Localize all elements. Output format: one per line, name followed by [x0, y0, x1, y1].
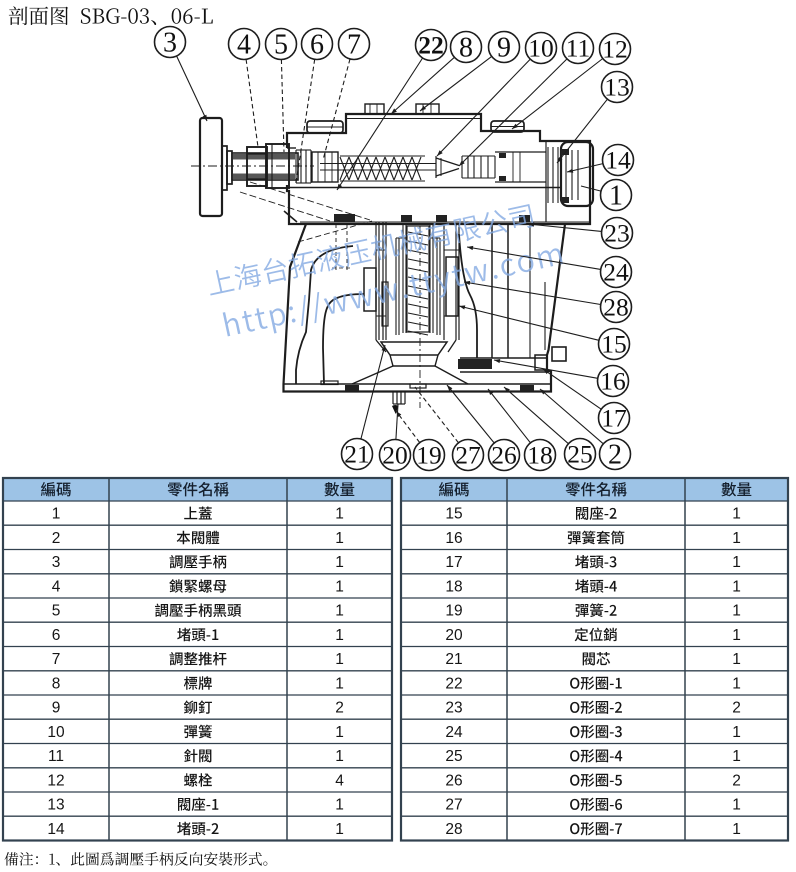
svg-text:26: 26 — [491, 441, 517, 470]
svg-text:1: 1 — [732, 530, 741, 547]
svg-text:1: 1 — [732, 676, 741, 693]
svg-text:23: 23 — [604, 219, 630, 248]
svg-text:1: 1 — [609, 180, 623, 211]
svg-text:23: 23 — [445, 700, 462, 717]
svg-text:10: 10 — [528, 34, 554, 63]
svg-text:2: 2 — [732, 773, 741, 790]
svg-text:20: 20 — [382, 441, 408, 470]
svg-text:17: 17 — [445, 554, 462, 571]
svg-text:25: 25 — [445, 748, 462, 765]
svg-text:21: 21 — [445, 651, 462, 668]
svg-text:24: 24 — [603, 258, 629, 287]
svg-text:5: 5 — [274, 29, 288, 60]
svg-text:8: 8 — [52, 676, 61, 693]
svg-text:11: 11 — [566, 34, 591, 63]
svg-text:1: 1 — [732, 554, 741, 571]
svg-text:1: 1 — [335, 797, 344, 814]
svg-text:19: 19 — [445, 603, 462, 620]
svg-text:16: 16 — [600, 367, 626, 396]
svg-text:19: 19 — [416, 441, 442, 470]
svg-text:4: 4 — [52, 579, 61, 596]
svg-text:22: 22 — [418, 31, 444, 60]
svg-text:1: 1 — [732, 748, 741, 765]
svg-text:4: 4 — [335, 773, 344, 790]
svg-text:1: 1 — [732, 506, 741, 523]
svg-text:1: 1 — [52, 506, 61, 523]
svg-text:24: 24 — [445, 724, 463, 741]
svg-text:13: 13 — [47, 797, 64, 814]
svg-text:1: 1 — [732, 579, 741, 596]
svg-text:28: 28 — [603, 293, 629, 322]
svg-text:18: 18 — [445, 579, 462, 596]
svg-text:12: 12 — [602, 35, 628, 64]
svg-text:15: 15 — [445, 506, 462, 523]
svg-text:1: 1 — [732, 821, 741, 838]
svg-text:21: 21 — [344, 440, 370, 469]
svg-text:1: 1 — [732, 651, 741, 668]
svg-text:4: 4 — [237, 29, 251, 60]
svg-text:10: 10 — [47, 724, 65, 741]
svg-text:12: 12 — [47, 773, 64, 790]
svg-text:1: 1 — [335, 554, 344, 571]
svg-text:22: 22 — [445, 676, 462, 693]
svg-text:28: 28 — [445, 821, 462, 838]
svg-text:1: 1 — [335, 579, 344, 596]
svg-text:6: 6 — [310, 29, 324, 60]
svg-text:1: 1 — [732, 724, 741, 741]
svg-text:27: 27 — [455, 441, 481, 470]
svg-text:2: 2 — [52, 530, 61, 547]
svg-text:1: 1 — [335, 651, 344, 668]
svg-text:7: 7 — [52, 651, 61, 668]
svg-text:7: 7 — [347, 29, 361, 60]
svg-text:16: 16 — [445, 530, 462, 547]
svg-text:1: 1 — [335, 530, 344, 547]
svg-text:2: 2 — [732, 700, 741, 717]
svg-text:25: 25 — [567, 440, 593, 469]
svg-text:26: 26 — [445, 773, 462, 790]
svg-text:1: 1 — [335, 627, 344, 644]
svg-text:9: 9 — [52, 700, 61, 717]
svg-text:1: 1 — [335, 676, 344, 693]
svg-text:11: 11 — [48, 748, 64, 765]
svg-text:1: 1 — [335, 603, 344, 620]
svg-text:1: 1 — [732, 603, 741, 620]
svg-text:1: 1 — [335, 748, 344, 765]
svg-text:1: 1 — [732, 627, 741, 644]
svg-text:18: 18 — [527, 441, 553, 470]
svg-text:3: 3 — [52, 554, 61, 571]
svg-text:1: 1 — [732, 797, 741, 814]
svg-text:14: 14 — [47, 821, 65, 838]
svg-text:27: 27 — [445, 797, 462, 814]
svg-text:20: 20 — [445, 627, 463, 644]
svg-text:5: 5 — [52, 603, 61, 620]
svg-text:3: 3 — [163, 27, 177, 58]
svg-text:15: 15 — [601, 330, 627, 359]
svg-text:1: 1 — [335, 506, 344, 523]
svg-text:2: 2 — [335, 700, 344, 717]
svg-text:13: 13 — [604, 73, 630, 102]
svg-text:2: 2 — [608, 439, 622, 470]
svg-text:8: 8 — [459, 32, 473, 63]
svg-text:1: 1 — [335, 724, 344, 741]
svg-text:6: 6 — [52, 627, 61, 644]
svg-text:1: 1 — [335, 821, 344, 838]
svg-text:9: 9 — [497, 32, 511, 63]
svg-text:17: 17 — [601, 404, 627, 433]
svg-text:14: 14 — [605, 146, 631, 175]
